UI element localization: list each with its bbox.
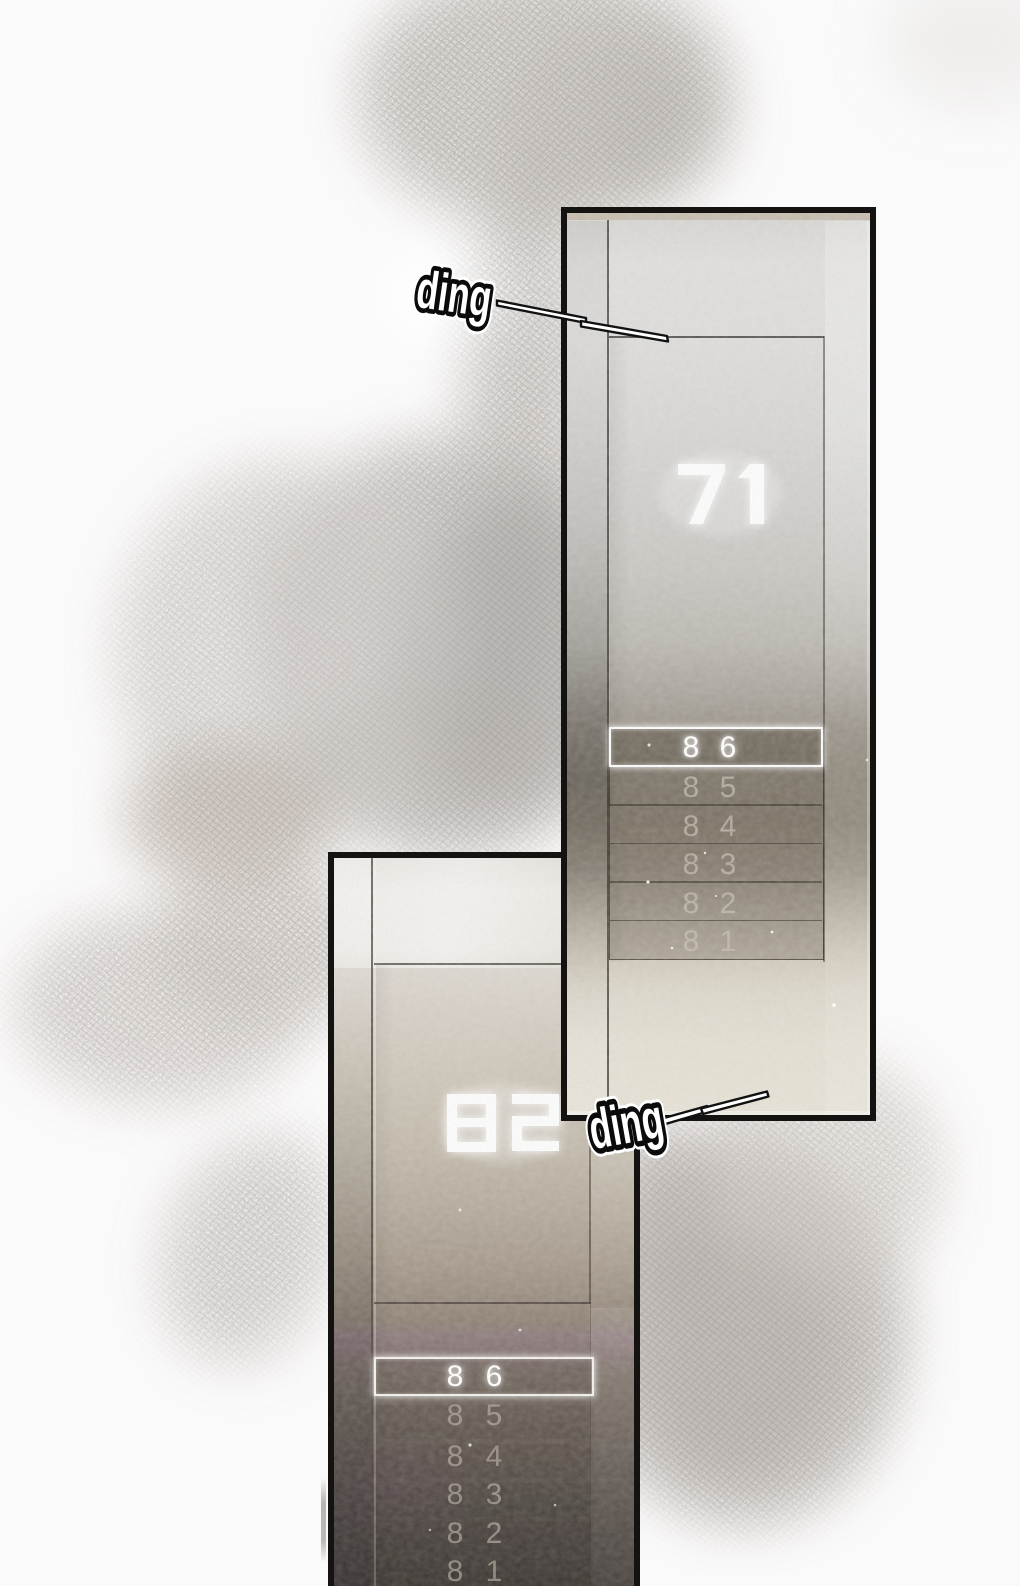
svg-text:ding: ding xyxy=(584,1086,668,1161)
svg-text:ding: ding xyxy=(413,260,495,329)
